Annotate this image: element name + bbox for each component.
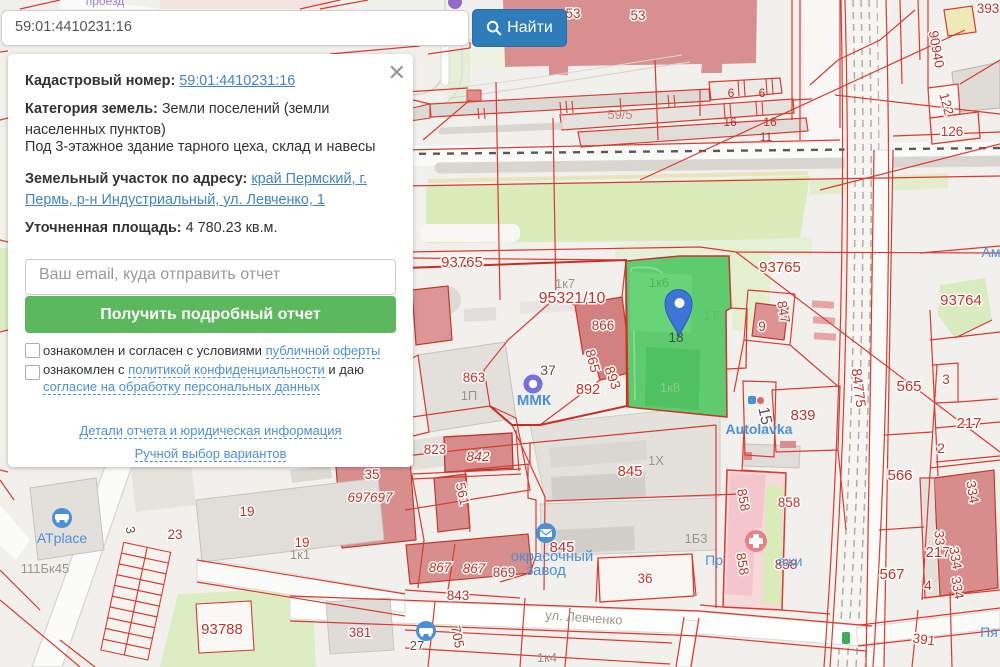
svg-text:1Т: 1Т <box>703 308 718 323</box>
svg-text:697697: 697697 <box>347 490 393 505</box>
svg-text:6: 6 <box>759 86 766 100</box>
svg-text:1к7: 1к7 <box>555 276 575 291</box>
svg-text:843: 843 <box>447 588 470 603</box>
svg-text:867: 867 <box>429 560 452 575</box>
svg-text:842: 842 <box>466 448 490 464</box>
svg-text:1к4: 1к4 <box>537 650 557 665</box>
svg-text:823: 823 <box>424 442 447 457</box>
svg-text:27: 27 <box>410 638 424 653</box>
svg-text:93788: 93788 <box>201 621 243 638</box>
svg-text:3: 3 <box>942 372 950 387</box>
svg-text:Пр: Пр <box>705 552 723 568</box>
svg-text:567: 567 <box>879 566 904 583</box>
svg-text:53: 53 <box>630 8 645 23</box>
svg-text:565: 565 <box>896 378 921 395</box>
svg-text:1X: 1X <box>648 453 664 468</box>
svg-text:59/5: 59/5 <box>607 107 632 122</box>
svg-text:845: 845 <box>617 463 642 480</box>
svg-text:4: 4 <box>924 577 932 593</box>
svg-text:1к1: 1к1 <box>290 547 310 562</box>
svg-text:1к6: 1к6 <box>649 275 669 290</box>
svg-text:ажи: ажи <box>778 553 803 569</box>
svg-text:95321/10: 95321/10 <box>539 290 606 307</box>
svg-text:391: 391 <box>912 631 936 649</box>
svg-text:11: 11 <box>760 130 773 144</box>
svg-text:93764: 93764 <box>940 292 982 309</box>
svg-text:93765: 93765 <box>759 259 801 276</box>
svg-text:126: 126 <box>941 124 964 139</box>
svg-text:217: 217 <box>956 415 981 432</box>
svg-text:1П: 1П <box>461 388 478 403</box>
svg-text:111Бк45: 111Бк45 <box>21 561 69 576</box>
svg-text:16: 16 <box>723 115 737 129</box>
svg-text:869: 869 <box>493 565 516 580</box>
svg-text:1Б3: 1Б3 <box>685 531 708 546</box>
svg-text:863: 863 <box>463 370 486 385</box>
svg-text:866: 866 <box>592 318 615 333</box>
svg-text:566: 566 <box>887 467 912 484</box>
svg-text:381: 381 <box>349 625 372 640</box>
svg-text:Autolavka: Autolavka <box>726 421 793 437</box>
svg-text:9: 9 <box>758 319 766 334</box>
svg-text:858: 858 <box>778 495 801 510</box>
svg-text:Пя: Пя <box>980 624 998 640</box>
svg-text:33: 33 <box>931 530 947 546</box>
svg-text:ATplace: ATplace <box>37 530 88 546</box>
svg-text:1к8: 1к8 <box>660 380 680 395</box>
svg-text:6: 6 <box>728 86 735 100</box>
svg-text:217: 217 <box>925 544 950 561</box>
svg-text:Ам: Ам <box>982 244 1000 260</box>
svg-text:37: 37 <box>540 362 556 378</box>
svg-text:839: 839 <box>790 407 815 424</box>
svg-text:36: 36 <box>637 571 652 586</box>
svg-text:2: 2 <box>937 440 945 456</box>
svg-text:проезд: проезд <box>86 0 125 8</box>
svg-text:53: 53 <box>565 6 580 21</box>
svg-text:19: 19 <box>239 504 254 519</box>
svg-text:892: 892 <box>576 382 600 398</box>
svg-text:16: 16 <box>763 115 777 129</box>
svg-text:867: 867 <box>463 561 486 576</box>
svg-text:35: 35 <box>364 467 379 482</box>
svg-text:23: 23 <box>167 527 182 542</box>
svg-text:93765: 93765 <box>441 254 483 271</box>
svg-text:393: 393 <box>977 1 1000 16</box>
svg-text:завод: завод <box>526 562 566 579</box>
svg-text:ММК: ММК <box>517 392 552 409</box>
